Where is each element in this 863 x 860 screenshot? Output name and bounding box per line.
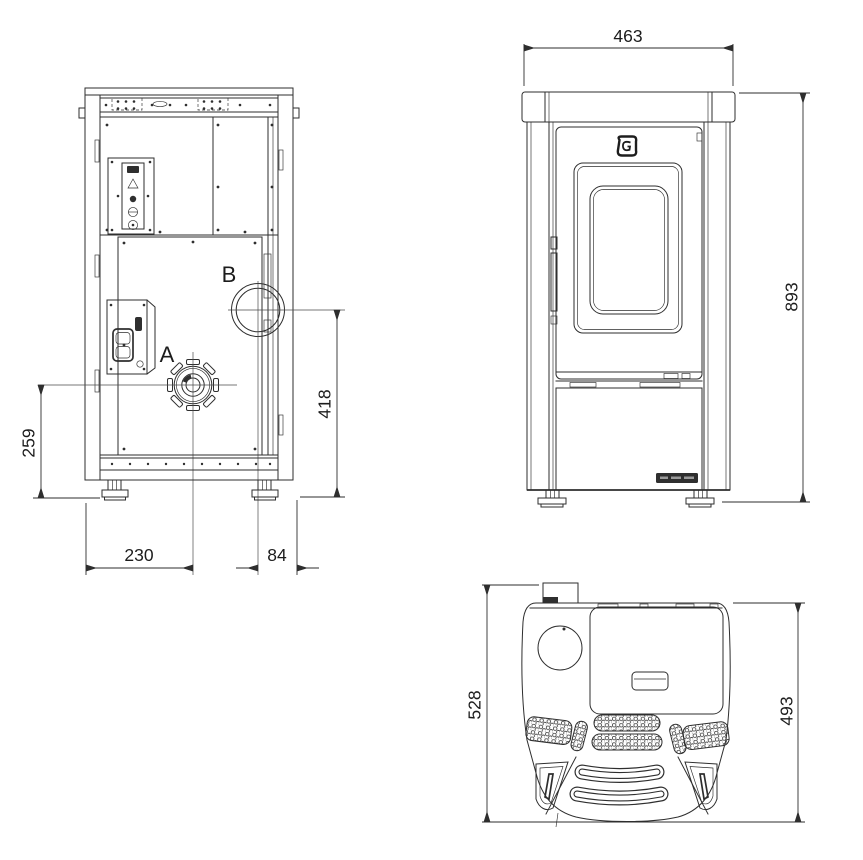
rear-top-rail bbox=[100, 98, 278, 117]
brand-logo-icon bbox=[618, 137, 636, 156]
rear-view: A B bbox=[38, 88, 345, 575]
top-body-outline bbox=[522, 603, 730, 822]
power-switch-box bbox=[107, 300, 155, 374]
rear-bottom-rail bbox=[85, 455, 293, 480]
drawing-canvas: A B 259 418 230 84 bbox=[0, 0, 863, 860]
rear-left-foot bbox=[102, 480, 128, 500]
top-view bbox=[522, 583, 730, 827]
flue-outlet-label: B bbox=[222, 262, 237, 287]
door-window-glass bbox=[590, 186, 668, 314]
dim-label-259: 259 bbox=[19, 428, 39, 457]
front-view bbox=[522, 92, 735, 507]
front-top-cap bbox=[522, 92, 735, 122]
rear-control-panel bbox=[108, 158, 154, 234]
power-inlet-slot bbox=[135, 317, 142, 331]
top-front-section bbox=[536, 757, 717, 827]
dim-label-418: 418 bbox=[315, 389, 335, 418]
round-connector-icon bbox=[130, 196, 136, 202]
rear-right-foot bbox=[252, 480, 278, 500]
top-hopper-lid bbox=[590, 607, 723, 714]
top-flue-gasket bbox=[543, 597, 558, 603]
rear-rail-slot bbox=[153, 101, 167, 106]
rear-dimensions: 259 418 230 84 bbox=[19, 310, 345, 575]
warning-triangle-icon bbox=[128, 179, 138, 188]
top-dimensions: 528 493 bbox=[465, 585, 805, 822]
air-intake-label: A bbox=[160, 342, 175, 367]
front-left-foot bbox=[538, 490, 566, 507]
rear-upper-panels bbox=[100, 117, 278, 235]
top-grille-band bbox=[525, 715, 730, 755]
front-fire-door bbox=[551, 127, 702, 379]
rear-right-clip bbox=[293, 108, 299, 118]
front-dimensions: 463 893 bbox=[524, 26, 810, 502]
pellet-stove-technical-drawing: A B 259 418 230 84 bbox=[0, 0, 863, 860]
rear-mid-panel bbox=[118, 117, 273, 455]
dim-label-528: 528 bbox=[465, 690, 485, 719]
dim-label-493: 493 bbox=[777, 696, 797, 725]
serial-connector-icon bbox=[127, 166, 139, 173]
dim-label-84: 84 bbox=[267, 545, 287, 565]
dim-label-230: 230 bbox=[124, 545, 153, 565]
front-right-foot bbox=[686, 490, 714, 507]
top-flue-collar bbox=[538, 626, 582, 670]
top-right-corner-vent bbox=[685, 762, 717, 810]
top-center-slots bbox=[577, 772, 661, 798]
top-lid-handle bbox=[632, 672, 668, 690]
dim-label-893: 893 bbox=[782, 282, 802, 311]
dim-label-463: 463 bbox=[613, 26, 642, 46]
front-lower-panel bbox=[556, 381, 702, 490]
rear-left-clip bbox=[79, 108, 85, 118]
